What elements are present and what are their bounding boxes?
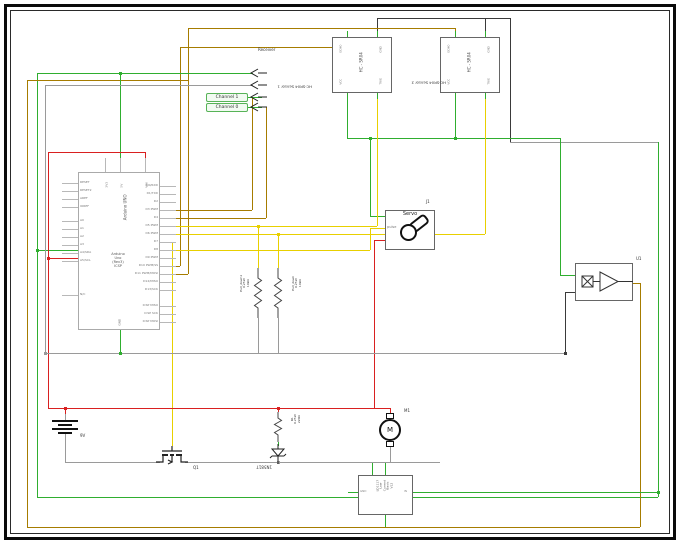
wire[interactable] — [37, 250, 78, 251]
pin-label-GND: GND — [118, 306, 121, 326]
pin-stub[interactable] — [160, 226, 176, 227]
pin-label-5V: 5V — [120, 168, 123, 188]
wire[interactable] — [633, 283, 640, 284]
amplifier-symbol — [578, 268, 634, 298]
sensor-pin-gnd: GND — [487, 39, 490, 53]
wire[interactable] — [385, 515, 386, 527]
amplifier-ref: U1 — [636, 257, 641, 262]
wire[interactable] — [370, 138, 371, 216]
wire[interactable] — [27, 80, 28, 527]
pin-stub[interactable] — [485, 93, 486, 99]
pin-stub[interactable] — [62, 229, 78, 230]
wire[interactable] — [188, 28, 189, 274]
wire[interactable] — [510, 142, 658, 143]
channel-0-label[interactable]: Channel 0 — [206, 103, 248, 112]
junction-dot — [119, 352, 122, 355]
wire[interactable] — [390, 447, 391, 462]
pin-label-D2: D2 — [126, 200, 158, 203]
pulldown1-label: Pull_down1 0.25W 10kΩ — [240, 268, 250, 298]
r1-resistor[interactable] — [274, 412, 282, 442]
junction-dot — [657, 491, 660, 494]
pin-label-D0/RXD: D0/RXD — [126, 184, 158, 187]
pin-stub[interactable] — [62, 199, 78, 200]
sensor2-rotated-label: HC-SR04 Sensor 2 — [396, 80, 446, 84]
wire[interactable] — [372, 462, 373, 475]
receiver-label: Receiver — [258, 48, 275, 53]
pin-stub[interactable] — [160, 194, 176, 195]
battery-part[interactable] — [50, 412, 82, 438]
wire[interactable] — [45, 85, 46, 353]
pin-label-A1: A1 — [80, 227, 110, 230]
pin-label-AREF: AREF — [80, 197, 110, 200]
wire[interactable] — [65, 462, 160, 463]
pin-stub[interactable] — [62, 253, 78, 254]
sensor-pin-vcc: VCC — [447, 71, 450, 85]
pin-stub[interactable] — [347, 31, 348, 37]
wire[interactable] — [278, 462, 440, 463]
wire[interactable] — [166, 234, 485, 235]
pin-label-D7: D7 — [126, 240, 158, 243]
pin-label-A5/SCL: A5/SCL — [80, 259, 110, 262]
wire[interactable] — [37, 497, 658, 498]
pin-stub[interactable] — [160, 234, 176, 235]
junction-dot — [44, 352, 47, 355]
junction-dot — [564, 352, 567, 355]
wire[interactable] — [510, 18, 511, 142]
battery-label: 9V — [80, 434, 85, 439]
r1-label: R1 0.25W 220Ω — [291, 407, 301, 431]
pin-stub[interactable] — [160, 306, 176, 307]
wire[interactable] — [347, 93, 348, 138]
pulldown-resistor-1[interactable] — [254, 268, 262, 318]
regulator-label: LD1117 Low Current Basic V12 — [376, 467, 393, 505]
wire[interactable] — [185, 462, 278, 463]
pin-label-D13/SCK: D13/SCK — [126, 288, 158, 291]
pin-label-D1/TXD: D1/TXD — [126, 192, 158, 195]
pin-stub[interactable] — [160, 210, 176, 211]
pin-stub[interactable] — [377, 93, 378, 99]
wire[interactable] — [27, 80, 188, 81]
motor-part[interactable]: M — [378, 413, 402, 449]
sensor-pin-trig: TRIG — [487, 71, 490, 85]
wire[interactable] — [258, 318, 259, 353]
pin-label-A3: A3 — [80, 243, 110, 246]
wire[interactable] — [640, 283, 641, 527]
wire[interactable] — [48, 152, 49, 408]
pin-label-D6 PWM: D6 PWM — [126, 232, 158, 235]
pin-stub[interactable] — [160, 314, 176, 315]
wire[interactable] — [560, 138, 561, 275]
channel-1-label[interactable]: Channel 1 — [206, 93, 248, 102]
pin-stub[interactable] — [62, 245, 78, 246]
wire[interactable] — [258, 226, 259, 268]
sensor1-rotated-label: HC-SR04 Sensor 1 — [266, 84, 312, 88]
wire[interactable] — [48, 258, 78, 259]
pin-label-D9 PWM: D9 PWM — [126, 256, 158, 259]
wire[interactable] — [658, 142, 659, 497]
wire[interactable] — [48, 408, 390, 409]
pin-stub[interactable] — [160, 322, 176, 323]
sensor-pin-trig: TRIG — [379, 71, 382, 85]
wire[interactable] — [37, 73, 253, 74]
wire[interactable] — [413, 492, 658, 493]
sensor-center-label: HC - SR04 — [360, 46, 365, 78]
servo-ref: J1 — [426, 200, 430, 205]
sensor-center-label: HC - SR04 — [468, 46, 473, 78]
pin-stub[interactable] — [160, 258, 176, 259]
wire[interactable] — [166, 210, 252, 211]
pin-stub[interactable] — [485, 31, 486, 37]
servo-hub-icon — [400, 224, 417, 241]
pin-label-IOREF: IOREF — [80, 205, 110, 208]
diode-part-label: 1N5817 — [248, 464, 272, 469]
sensor-pin-vcc: VCC — [339, 71, 342, 85]
pin-label-3V3: 3V3 — [105, 168, 108, 188]
servo-pulse-pin-label: pulse — [387, 225, 396, 229]
schematic-canvas: Arduino UNO Arduino Uno (Rev3) ICSP Rece… — [0, 0, 680, 544]
pin-stub[interactable] — [160, 274, 176, 275]
pin-stub[interactable] — [377, 31, 378, 37]
pin-stub[interactable] — [160, 266, 176, 267]
wire[interactable] — [455, 93, 456, 138]
pin-stub[interactable] — [62, 191, 78, 192]
pin-label-RESET2: RESET2 — [80, 189, 110, 192]
wire[interactable] — [485, 93, 486, 234]
pin-label-D11 PWM/MOSI: D11 PWM/MOSI — [126, 272, 158, 275]
pin-label-A4/SDA: A4/SDA — [80, 251, 110, 254]
wire[interactable] — [166, 226, 377, 227]
pin-stub[interactable] — [62, 221, 78, 222]
wire[interactable] — [166, 218, 266, 219]
junction-dot — [257, 225, 260, 228]
wire[interactable] — [45, 85, 253, 86]
wire[interactable] — [27, 527, 640, 528]
wire[interactable] — [45, 353, 565, 354]
junction-dot — [369, 137, 372, 140]
mosfet-part[interactable] — [156, 446, 188, 464]
wire[interactable] — [172, 242, 173, 446]
wire[interactable] — [560, 275, 575, 276]
wire[interactable] — [377, 18, 510, 19]
pin-label-D3 PWM: D3 PWM — [126, 208, 158, 211]
wire[interactable] — [374, 240, 385, 241]
pin-stub[interactable] — [160, 202, 176, 203]
wire[interactable] — [377, 93, 378, 226]
regulator-gnd-pin-label: GND — [360, 489, 366, 493]
wire[interactable] — [565, 292, 566, 353]
sensor-pin-echo: ECHO — [339, 39, 342, 53]
wire[interactable] — [370, 228, 385, 229]
wire[interactable] — [48, 152, 145, 153]
pin-stub[interactable] — [160, 290, 176, 291]
pin-label-ICSP SCK: ICSP SCK — [126, 312, 158, 315]
pin-label-A2: A2 — [80, 235, 110, 238]
wire[interactable] — [266, 107, 267, 218]
pulldown2-label: Pull_down 0.25W 10kΩ — [292, 268, 302, 298]
pin-stub[interactable] — [160, 242, 176, 243]
pin-label-D12/MISO: D12/MISO — [126, 280, 158, 283]
pin-stub[interactable] — [62, 295, 78, 296]
pin-label-D4: D4 — [126, 216, 158, 219]
junction-dot — [47, 257, 50, 260]
motor-ref: M1 — [404, 409, 410, 414]
wire[interactable] — [166, 250, 370, 251]
pin-stub[interactable] — [455, 31, 456, 37]
pin-stub[interactable] — [160, 218, 176, 219]
junction-dot — [454, 137, 457, 140]
pin-label-N/C: N/C — [80, 293, 110, 296]
wire[interactable] — [37, 73, 38, 497]
pin-stub[interactable] — [347, 93, 348, 99]
sensor-pin-gnd: GND — [379, 39, 382, 53]
wire[interactable] — [278, 234, 279, 268]
wire[interactable] — [374, 240, 375, 408]
wire[interactable] — [188, 28, 455, 29]
pin-stub[interactable] — [455, 93, 456, 99]
pin-stub[interactable] — [62, 183, 78, 184]
pin-label-D8: D8 — [126, 248, 158, 251]
diode-part[interactable] — [270, 444, 286, 464]
wire[interactable] — [348, 492, 358, 493]
pin-label-A0: A0 — [80, 219, 110, 222]
wire[interactable] — [565, 292, 575, 293]
wire[interactable] — [120, 330, 121, 353]
pin-stub[interactable] — [62, 237, 78, 238]
pin-stub[interactable] — [160, 186, 176, 187]
pin-stub[interactable] — [62, 207, 78, 208]
pin-stub[interactable] — [160, 282, 176, 283]
wire[interactable] — [370, 228, 371, 250]
sensor-pin-echo: ECHO — [447, 39, 450, 53]
junction-dot — [64, 407, 67, 410]
junction-dot — [36, 249, 39, 252]
pin-stub[interactable] — [160, 250, 176, 251]
junction-dot — [277, 407, 280, 410]
pin-label-ICSP MISO: ICSP MISO — [126, 304, 158, 307]
pulldown-resistor-2[interactable] — [274, 268, 282, 318]
pin-label-ICSP MOSI: ICSP MOSI — [126, 320, 158, 323]
pin-label-VIN: VIN — [145, 168, 148, 188]
junction-dot — [277, 233, 280, 236]
junction-dot — [119, 72, 122, 75]
mosfet-ref: Q1 — [193, 466, 199, 471]
pin-label-D10 PWM/SS: D10 PWM/SS — [126, 264, 158, 267]
regulator-in-pin-label: IN — [404, 489, 407, 493]
pin-stub[interactable] — [62, 261, 78, 262]
wire[interactable] — [278, 318, 279, 353]
receiver-connector[interactable] — [248, 66, 272, 114]
pin-label-D5 PWM: D5 PWM — [126, 224, 158, 227]
